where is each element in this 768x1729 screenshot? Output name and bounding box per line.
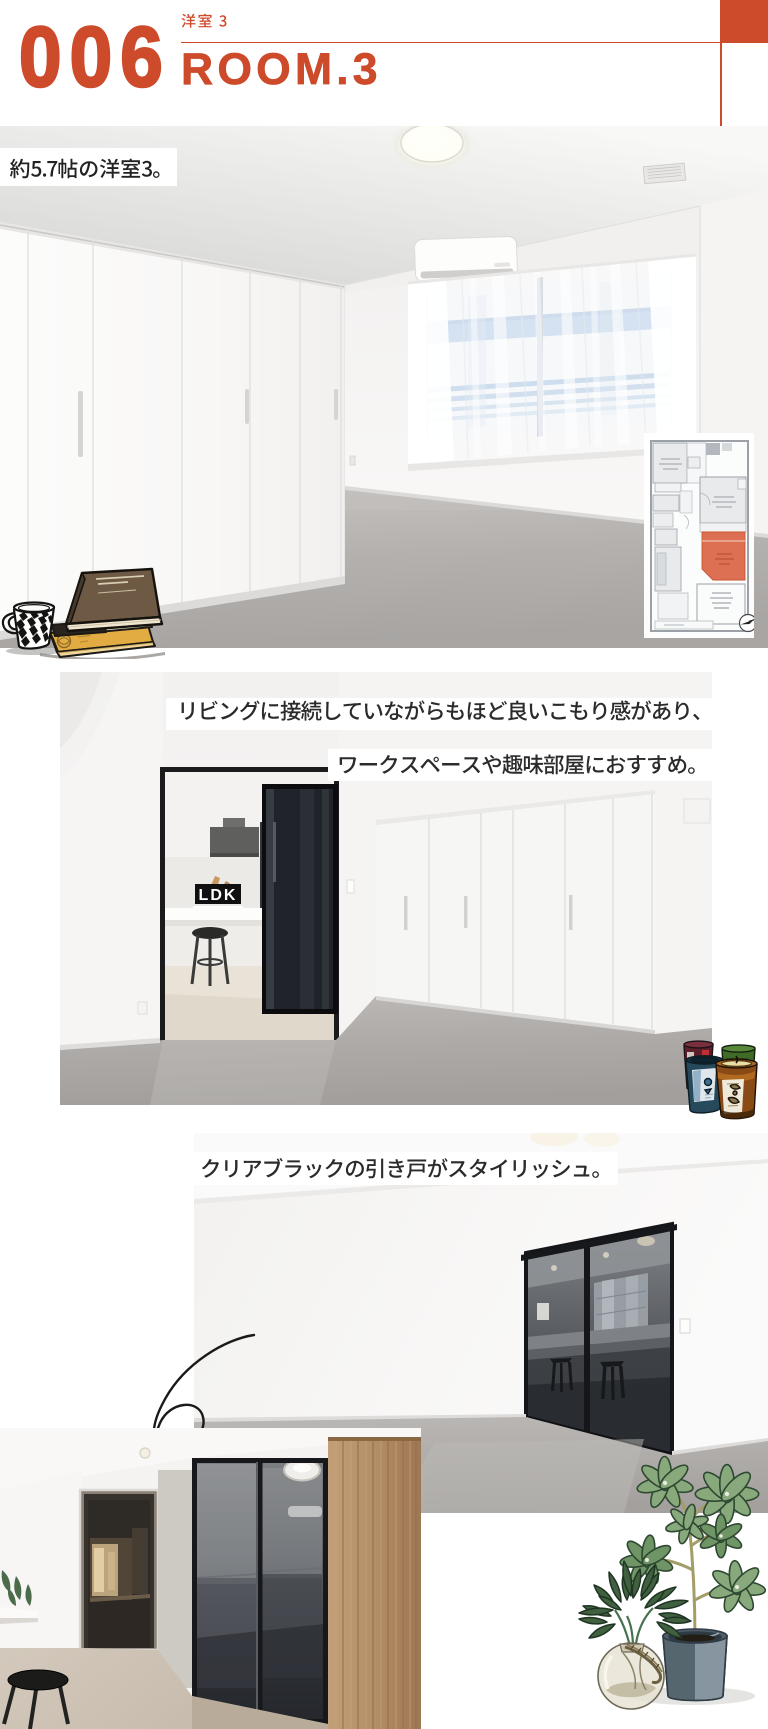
- svg-text:LDK: LDK: [199, 887, 238, 904]
